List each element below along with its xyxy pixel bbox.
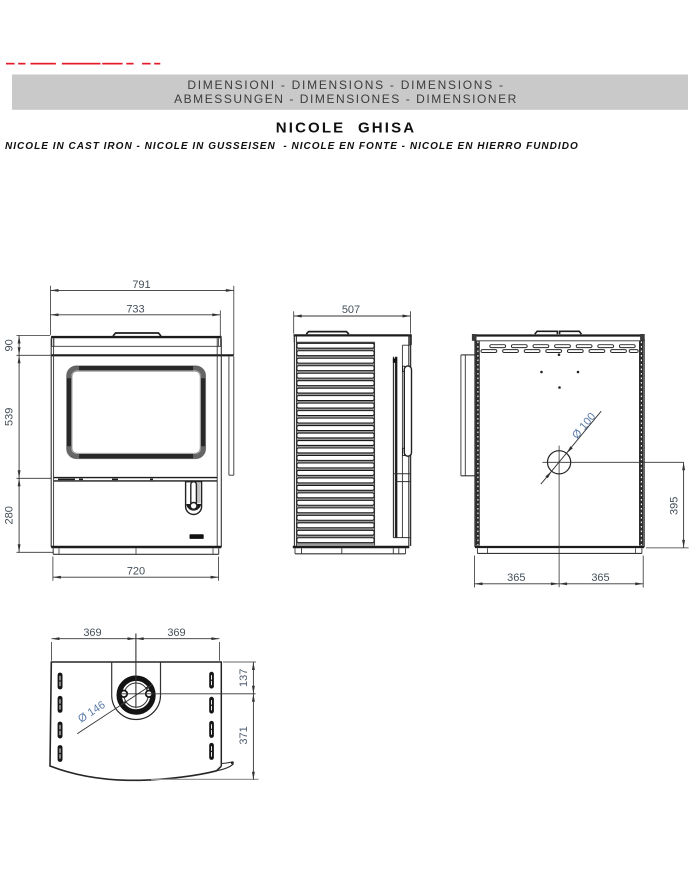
svg-text:369: 369 xyxy=(83,627,101,639)
svg-text:ABMESSUNGEN - DIMENSIONES - DI: ABMESSUNGEN - DIMENSIONES - DIMENSIONER xyxy=(174,92,518,106)
svg-text:90: 90 xyxy=(4,339,16,351)
svg-text:720: 720 xyxy=(127,566,145,578)
svg-text:733: 733 xyxy=(126,303,144,315)
svg-text:NICOLE GHISA: NICOLE GHISA xyxy=(276,119,416,136)
svg-text:395: 395 xyxy=(668,497,680,515)
svg-text:371: 371 xyxy=(238,726,250,744)
svg-text:365: 365 xyxy=(591,572,609,584)
svg-text:507: 507 xyxy=(342,304,360,316)
svg-text:280: 280 xyxy=(4,506,16,524)
svg-text:NICOLE IN CAST IRON - NICOLE I: NICOLE IN CAST IRON - NICOLE IN GUSSEISE… xyxy=(5,141,579,152)
svg-text:369: 369 xyxy=(167,627,185,639)
svg-text:137: 137 xyxy=(238,669,250,687)
svg-text:539: 539 xyxy=(4,408,16,426)
svg-text:791: 791 xyxy=(132,279,150,291)
svg-text:365: 365 xyxy=(507,572,525,584)
svg-text:DIMENSIONI - DIMENSIONS - DIME: DIMENSIONI - DIMENSIONS - DIMENSIONS - xyxy=(187,78,504,92)
